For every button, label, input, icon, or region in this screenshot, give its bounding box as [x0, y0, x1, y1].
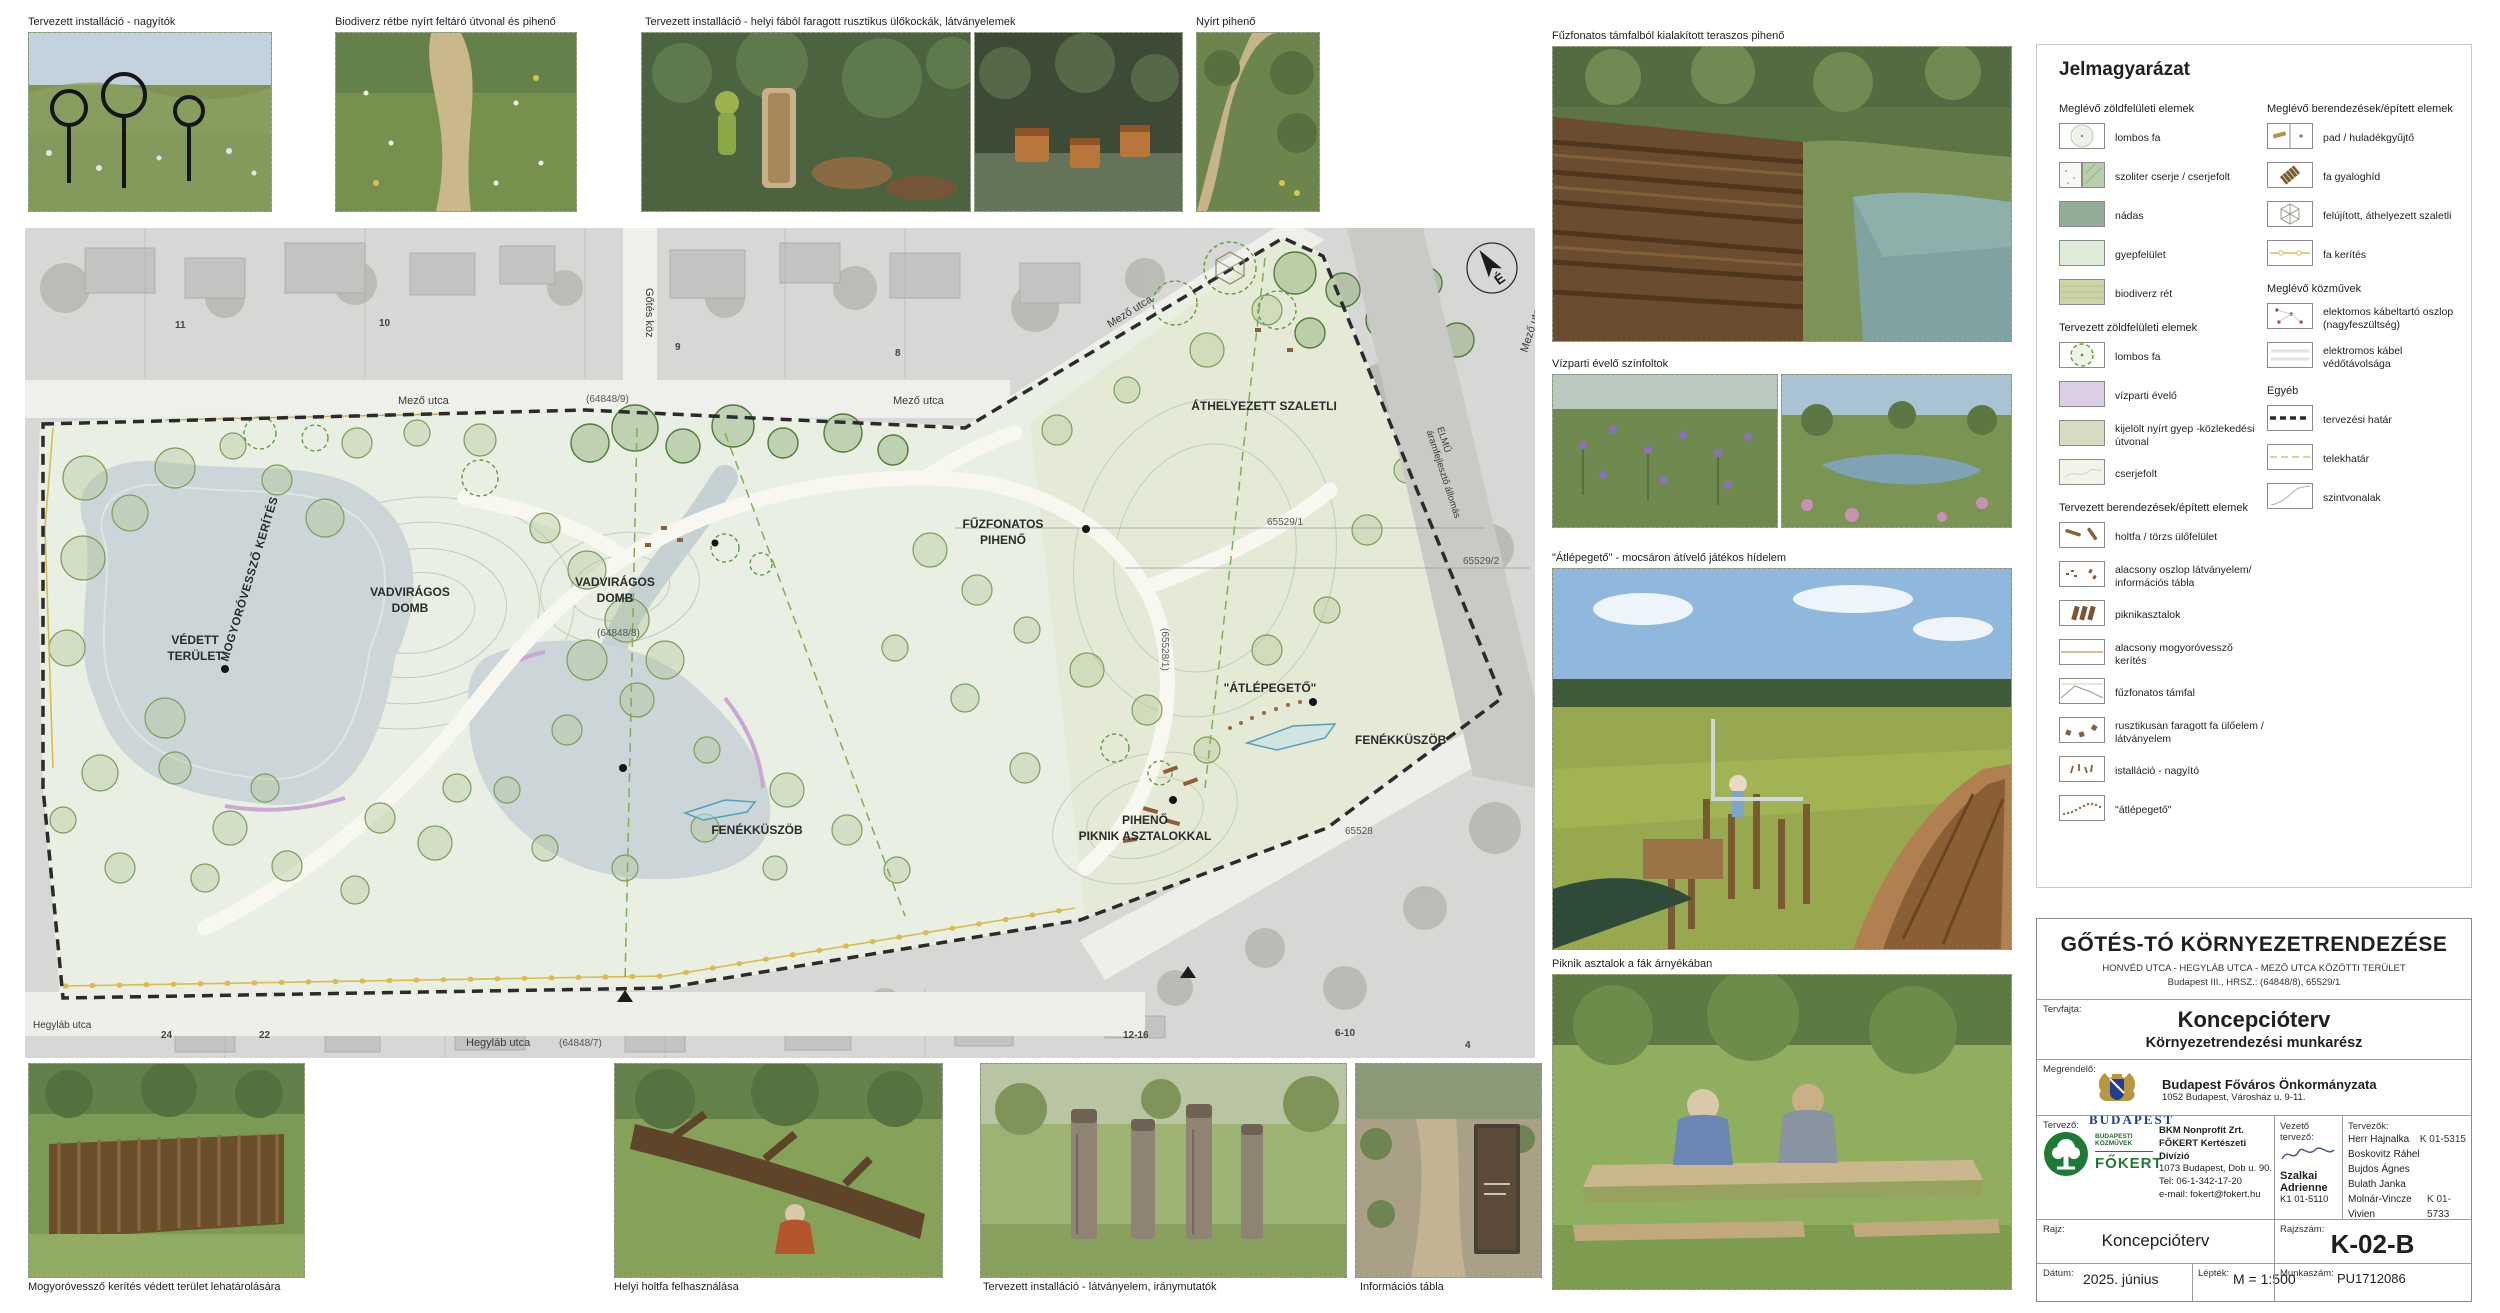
divider [2037, 1059, 2471, 1060]
bench-bin-swatch [2267, 123, 2313, 154]
legend-item: piknikasztalok [2059, 600, 2267, 631]
tervezok-label: Tervezők: [2348, 1121, 2466, 1132]
photo-sketch [1356, 1064, 1541, 1277]
house-6-10: 6-10 [1335, 1028, 1355, 1039]
road-hegylab-utca [25, 992, 1145, 1036]
divider [2037, 999, 2471, 1000]
photo-sketch [336, 33, 576, 211]
company-tel: Tel: 06-1-342-17-20 [2159, 1176, 2274, 1189]
legend-panel: Jelmagyarázat Meglévő zöldfelületi eleme… [2036, 44, 2472, 888]
designer-reg: K 01-5315 [2420, 1132, 2466, 1147]
tervezo-label: Tervező: [2043, 1120, 2079, 1131]
plan-sheet: Tervezett installáció - nagyítók Biodive… [0, 0, 2500, 1313]
project-subtitle-2: Budapest III., HRSZ.: (64848/8), 65529/1 [2037, 977, 2471, 988]
legend-item: lombos fa [2059, 342, 2267, 373]
caption-top-2: Biodiverz rétbe nyírt feltáró útvonal és… [335, 16, 556, 28]
legend-item: istalláció - nagyító [2059, 756, 2267, 787]
street-hegylab-center: Hegyláb utca [466, 1037, 531, 1049]
designer-name: Boskovitz Ráhel [2348, 1149, 2420, 1160]
mown-lawn-route-swatch [2059, 420, 2105, 451]
proposed-tree-swatch [2059, 342, 2105, 373]
plan-type-2: Környezetrendezési munkarész [2037, 1035, 2471, 1051]
parcel-65528: 65528 [1345, 826, 1373, 837]
budapest-crest-icon [2095, 1071, 2139, 1107]
signature-icon [2280, 1143, 2336, 1165]
label-vadviragos2-1: VADVIRÁGOS [575, 574, 655, 589]
legend-item: szoliter cserje / cserjefolt [2059, 162, 2267, 193]
legend-item: "átlépegető" [2059, 795, 2267, 826]
legend-item: pad / huladékgyűjtő [2267, 123, 2462, 154]
label-athelyezett-szaletli: ÁTHELYEZETT SZALETLI [1191, 398, 1337, 413]
photo-sketch [1553, 569, 2011, 949]
photo-meadow-path [335, 32, 577, 212]
photo-sketch [29, 1064, 304, 1277]
designer-name: Bujdos Ágnes [2348, 1164, 2410, 1175]
legend-item: elektomos kábeltartó oszlop (nagyfeszült… [2267, 303, 2462, 334]
picnic-table-swatch [2059, 600, 2105, 631]
label-piheno-2: PIKNIK ASZTALOKKAL [1079, 829, 1212, 843]
legend-item: tervezési határ [2267, 405, 2462, 436]
existing-tree-swatch [2059, 123, 2105, 154]
legend-item: biodiverz rét [2059, 279, 2267, 310]
stepping-path-swatch [2059, 795, 2105, 826]
photo-sketch [1553, 975, 2011, 1289]
legend-item: rusztikusan faragott fa ülőelem / látván… [2059, 717, 2267, 748]
job-number: PU1712086 [2337, 1271, 2406, 1286]
legend-item: cserjefolt [2059, 459, 2267, 490]
photo-sketch [981, 1064, 1346, 1277]
caption-right-4: Piknik asztalok a fák árnyékában [1552, 958, 1712, 970]
label-vadviragos1-1: VADVIRÁGOS [370, 584, 450, 599]
photo-willow-terrace-wall [1552, 46, 2012, 342]
datum-label: Dátum: [2043, 1268, 2074, 1279]
house-8: 8 [895, 348, 901, 359]
fokert-tree-icon [2043, 1131, 2089, 1177]
biodiverse-meadow-swatch [2059, 279, 2105, 310]
parcel-boundary-swatch [2267, 444, 2313, 475]
label-fenekkuszob-west: FENÉKKÜSZÖB [711, 822, 803, 837]
divider [2037, 1219, 2471, 1220]
legend-item: alacsony oszlop látványelem/ információs… [2059, 561, 2267, 592]
house-9: 9 [675, 342, 681, 353]
divider [2037, 1263, 2471, 1264]
reed-swatch [2059, 201, 2105, 232]
photo-sketch [1553, 47, 2011, 341]
cable-clearance-swatch [2267, 342, 2313, 373]
legend-section-title: Meglévő berendezések/épített elemek [2267, 103, 2462, 115]
fokert-small-2: KÖZMŰVEK [2095, 1140, 2132, 1147]
legend-item: alacsony mogyoróvessző kerítés [2059, 639, 2267, 670]
caption-right-3: "Átlépegető" - mocsáron átívelő játékos … [1552, 552, 1786, 564]
client-name: Budapest Főváros Önkormányzata [2162, 1077, 2377, 1092]
legend-item: kijelölt nyírt gyep -közlekedési útvonal [2059, 420, 2267, 451]
photo-wood-carving [641, 32, 971, 212]
label-vedett-1: VÉDETT [171, 632, 219, 647]
company-address: 1073 Budapest, Dob u. 90. [2159, 1163, 2274, 1176]
photo-sketch [1553, 375, 1777, 527]
legend-item: lombos fa [2059, 123, 2267, 154]
label-atlepegeto: "ÁTLÉPEGETŐ" [1224, 680, 1317, 695]
photo-sketch [1782, 375, 2011, 527]
plan-type: Koncepcióterv [2037, 1007, 2471, 1033]
legend-section-title: Meglévő zöldfelületi elemek [2059, 103, 2267, 115]
photo-iris-meadow [1552, 374, 1778, 528]
caption-top-3: Tervezett installáció - helyi fából fara… [645, 16, 1016, 28]
photo-sketch [615, 1064, 942, 1277]
designer-name: Bulath Janka [2348, 1179, 2406, 1190]
vezeto-label: Vezető tervező: [2280, 1121, 2338, 1143]
legend-item: elektromos kábel védőtávolsága [2267, 342, 2462, 373]
legend-right-column: Meglévő berendezések/épített elemek pad … [2267, 91, 2462, 522]
carved-wood-swatch [2059, 717, 2105, 748]
house-4: 4 [1465, 1040, 1471, 1051]
designer-reg: K 01-5733 [2427, 1192, 2466, 1222]
wood-fence-swatch [2267, 240, 2313, 271]
company-email: e-mail: fokert@fokert.hu [2159, 1189, 2274, 1202]
photo-deadwood [614, 1063, 943, 1278]
legend-item: fűzfonatos támfal [2059, 678, 2267, 709]
parcel-64848-9: (64848/9) [586, 394, 629, 405]
divider [2274, 1263, 2275, 1301]
drawing-name: Koncepcióterv [2037, 1231, 2274, 1251]
label-fuzfonatos-1: FŰZFONATOS [963, 516, 1044, 531]
street-mezo-2: Mező utca [893, 395, 945, 407]
company-name: BKM Nonprofit Zrt. [2159, 1125, 2274, 1138]
caption-bottom-1: Mogyoróvessző kerítés védett terület leh… [28, 1281, 281, 1293]
divider [2192, 1263, 2193, 1301]
waterside-perennial-swatch [2059, 381, 2105, 412]
photo-sketch [975, 33, 1182, 211]
parcel-64848-7: (64848/7) [559, 1038, 602, 1049]
proposed-shrub-swatch [2059, 459, 2105, 490]
legend-item: vízparti évelő [2059, 381, 2267, 412]
lead-designer-name: Szalkai Adrienne [2280, 1170, 2338, 1194]
legend-section-title: Tervezett zöldfelületi elemek [2059, 322, 2267, 334]
caption-right-2: Vízparti évelő színfoltok [1552, 358, 1668, 370]
street-gotes-koz: Gőtés köz [643, 288, 655, 338]
house-10: 10 [379, 318, 391, 329]
legend-item: szintvonalak [2267, 483, 2462, 514]
photo-wooden-posts [980, 1063, 1347, 1278]
label-fuzfonatos-2: PIHENŐ [980, 532, 1026, 547]
leptek-label: Lépték: [2198, 1268, 2229, 1279]
fokert-logo [2043, 1131, 2089, 1182]
lead-designer: Vezető tervező: Szalkai Adrienne K1 01-5… [2280, 1121, 2338, 1207]
deadwood-swatch [2059, 522, 2105, 553]
photo-wood-cubes [974, 32, 1183, 212]
site-plan: É MOGYORÓVESSZŐ KERÍTÉS VÉDETT TERÜLET V… [25, 228, 1535, 1058]
budapest-logo: BUDAPEST [2089, 1071, 2145, 1128]
fokert-small-1: BUDAPESTI [2095, 1133, 2133, 1140]
parcel-65529-2: 65529/2 [1463, 556, 1500, 567]
design-boundary-swatch [2267, 405, 2313, 436]
label-vedett-2: TERÜLET [167, 648, 223, 663]
title-block: GŐTÉS-TÓ KÖRNYEZETRENDEZÉSE HONVÉD UTCA … [2036, 918, 2472, 1302]
label-fenekkuszob-east: FENÉKKÜSZÖB [1355, 732, 1447, 747]
legend-section-title: Egyéb [2267, 385, 2462, 397]
divider [2274, 1115, 2275, 1219]
legend-item: holtfa / törzs ülőfelület [2059, 522, 2267, 553]
house-24: 24 [161, 1030, 173, 1041]
legend-title: Jelmagyarázat [2059, 59, 2190, 81]
caption-top-4: Nyírt pihenő [1196, 16, 1255, 28]
photo-picnic-table [1552, 974, 2012, 1290]
caption-bottom-3: Tervezett installáció - látványelem, irá… [983, 1281, 1217, 1293]
munkaszam-label: Munkaszám: [2280, 1268, 2334, 1279]
label-piheno-1: PIHENŐ [1122, 812, 1168, 827]
legend-item: felújított, áthelyezett szaletli [2267, 201, 2462, 232]
megrendelo-label: Megrendelő: [2043, 1064, 2096, 1075]
power-pole-swatch [2267, 303, 2313, 334]
drawing-number: K-02-B [2274, 1229, 2471, 1260]
label-vadviragos1-2: DOMB [392, 601, 429, 615]
magnifier-installation-swatch [2059, 756, 2105, 787]
divider [2342, 1115, 2343, 1219]
photo-pond-meadow [1781, 374, 2012, 528]
low-post-swatch [2059, 561, 2105, 592]
photo-info-sign [1355, 1063, 1542, 1278]
photo-marsh-boardwalk [1552, 568, 2012, 950]
divider [2037, 1115, 2471, 1116]
street-mezo-1: Mező utca [398, 395, 450, 407]
caption-bottom-4: Információs tábla [1360, 1281, 1444, 1293]
label-vadviragos2-2: DOMB [597, 591, 634, 605]
gazebo-swatch [2267, 201, 2313, 232]
house-11: 11 [175, 320, 186, 331]
company-info: BKM Nonprofit Zrt. FŐKERT Kertészeti Div… [2159, 1125, 2274, 1202]
lead-designer-reg: K1 01-5110 [2280, 1194, 2338, 1207]
photo-installation-magnifiers [28, 32, 272, 212]
fokert-logo-text: BUDAPESTIKÖZMŰVEK FŐKERT [2095, 1133, 2153, 1172]
legend-left-column: Meglévő zöldfelületi elemek lombos fa sz… [2059, 91, 2267, 834]
project-title: GŐTÉS-TÓ KÖRNYEZETRENDEZÉSE [2037, 933, 2471, 957]
footbridge-swatch [2267, 162, 2313, 193]
project-subtitle-1: HONVÉD UTCA - HEGYLÁB UTCA - MEZŐ UTCA K… [2037, 963, 2471, 974]
client-address: 1052 Budapest, Városház u. 9-11. [2162, 1092, 2377, 1105]
house-12-16: 12-16 [1123, 1030, 1149, 1041]
willow-wall-swatch [2059, 678, 2105, 709]
legend-section-title: Meglévő közművek [2267, 283, 2462, 295]
caption-right-1: Fűzfonatos támfalból kialakított teraszo… [1552, 30, 1784, 42]
legend-section-title: Tervezett berendezések/épített elemek [2059, 502, 2267, 514]
photo-hazel-fence [28, 1063, 305, 1278]
legend-item: fa gyaloghíd [2267, 162, 2462, 193]
photo-sketch [29, 33, 271, 211]
legend-item: fa kerítés [2267, 240, 2462, 271]
legend-item: nádas [2059, 201, 2267, 232]
date-value: 2025. június [2083, 1271, 2159, 1287]
caption-bottom-2: Helyi holtfa felhasználása [614, 1281, 739, 1293]
lawn-swatch [2059, 240, 2105, 271]
contour-swatch [2267, 483, 2313, 514]
designers: Tervezők: Herr HajnalkaK 01-5315 Boskovi… [2348, 1121, 2466, 1222]
photo-mown-rest-area [1196, 32, 1320, 212]
parcel-65529-1: 65529/1 [1267, 517, 1304, 528]
hazel-fence-swatch [2059, 639, 2105, 670]
legend-item: telekhatár [2267, 444, 2462, 475]
designer-name: Herr Hajnalka [2348, 1132, 2409, 1147]
existing-shrub-swatch [2059, 162, 2105, 193]
parcel-64848-8: (64848/8) [597, 628, 640, 639]
street-hegylab-left: Hegyláb utca [33, 1020, 92, 1031]
client-info: Budapest Főváros Önkormányzata 1052 Buda… [2162, 1077, 2377, 1105]
photo-sketch [1197, 33, 1319, 211]
site-plan-drawing: É MOGYORÓVESSZŐ KERÍTÉS VÉDETT TERÜLET V… [25, 228, 1535, 1058]
parcel-65528-1: (65528/1) [1159, 628, 1170, 671]
designer-name: Molnár-Vincze Vivien [2348, 1192, 2427, 1222]
fokert-word: FŐKERT [2095, 1155, 2153, 1172]
photo-sketch [642, 33, 970, 211]
caption-top-1: Tervezett installáció - nagyítók [28, 16, 175, 28]
company-division: FŐKERT Kertészeti Divízió [2159, 1138, 2274, 1164]
house-22: 22 [259, 1030, 271, 1041]
legend-item: gyepfelület [2059, 240, 2267, 271]
